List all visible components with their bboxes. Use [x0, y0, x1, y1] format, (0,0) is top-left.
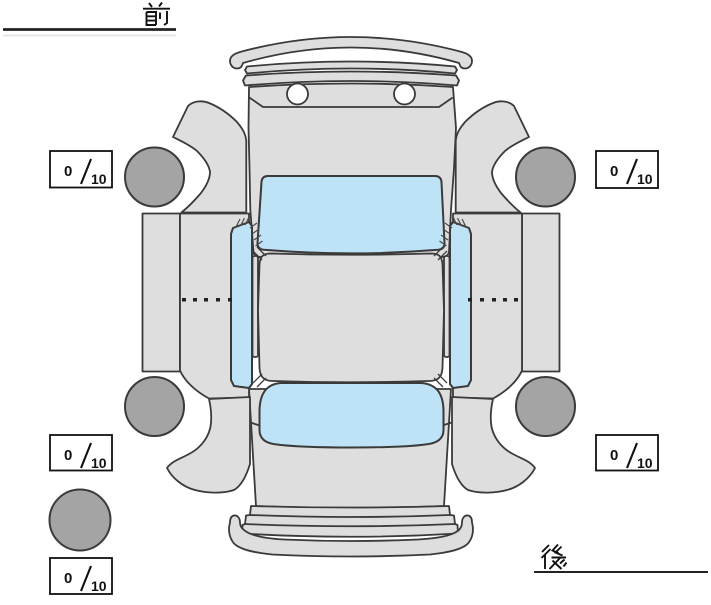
svg-text:10: 10 — [637, 455, 653, 471]
svg-text:10: 10 — [91, 171, 107, 187]
svg-text:10: 10 — [91, 578, 107, 594]
svg-text:10: 10 — [637, 171, 653, 187]
svg-text:0: 0 — [64, 163, 72, 180]
svg-text:0: 0 — [64, 570, 72, 587]
svg-text:10: 10 — [91, 455, 107, 471]
svg-text:0: 0 — [610, 163, 618, 180]
svg-text:0: 0 — [610, 447, 618, 464]
svg-text:0: 0 — [64, 447, 72, 464]
